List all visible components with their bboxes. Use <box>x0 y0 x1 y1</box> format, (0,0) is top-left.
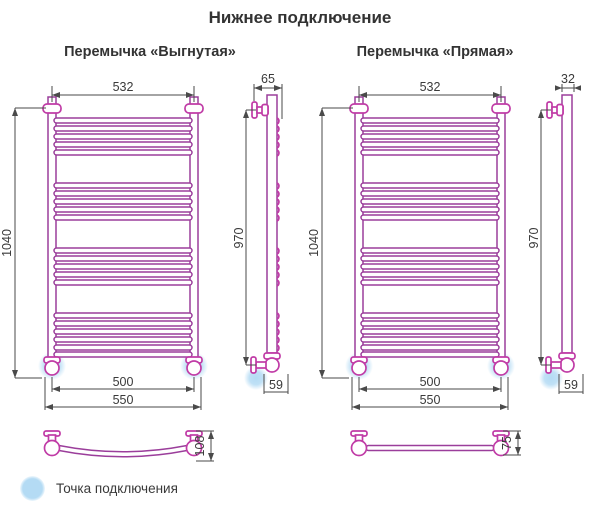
radiator-outline <box>15 86 208 410</box>
radiator-outline <box>322 86 515 410</box>
dim-width-top: 532 <box>420 80 441 94</box>
side-view-curved: 65 970 59 <box>232 72 288 394</box>
dim-width-top: 532 <box>113 80 134 94</box>
crossbar-top-view-straight: 75 <box>351 431 521 456</box>
dim-connection-spacing: 500 <box>113 375 134 389</box>
dim-bottom-offset: 59 <box>269 378 283 392</box>
side-post <box>267 95 277 353</box>
dim-height: 1040 <box>307 229 321 257</box>
legend-label: Точка подключения <box>56 481 178 496</box>
dim-height: 1040 <box>0 229 14 257</box>
dim-outer-width: 550 <box>113 393 134 407</box>
bottom-connection-fitting <box>251 353 280 373</box>
front-view-straight: 532 1040 500 550 <box>307 80 515 410</box>
dim-depth: 32 <box>561 72 575 86</box>
dim-outer-width: 550 <box>420 393 441 407</box>
legend: Точка подключения <box>20 476 178 501</box>
side-post <box>562 95 572 353</box>
dim-bottom-offset: 59 <box>564 378 578 392</box>
technical-drawing: 532 1040 500 550 <box>0 0 600 520</box>
dim-bow-depth: 108 <box>193 436 207 457</box>
side-view-straight: 32 970 59 <box>527 72 583 394</box>
dim-bow-depth: 75 <box>500 436 514 450</box>
dim-mount-height: 970 <box>527 228 541 249</box>
dim-depth: 65 <box>261 72 275 86</box>
dim-mount-height: 970 <box>232 228 246 249</box>
front-view-curved: 532 1040 500 550 <box>0 80 208 410</box>
connection-point-icon <box>20 476 45 501</box>
crossbar-top-view-curved: 108 <box>44 431 214 461</box>
bottom-connection-fitting <box>546 353 575 373</box>
curved-crossbar <box>59 446 187 457</box>
dim-connection-spacing: 500 <box>420 375 441 389</box>
diagram-canvas: Нижнее подключение Перемычка «Выгнутая» … <box>0 0 600 520</box>
straight-crossbar <box>366 446 494 451</box>
